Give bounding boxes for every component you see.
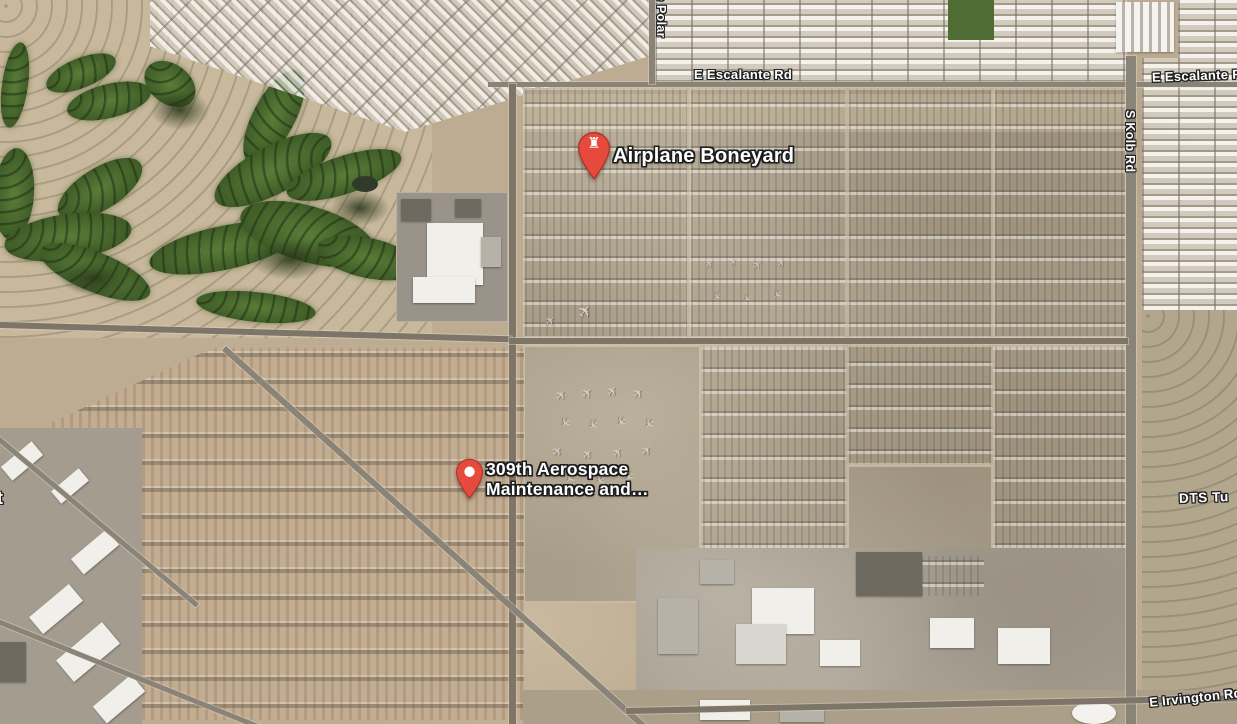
road-label-escalante-right: E Escalante Rd [1152,66,1237,84]
pond [352,176,378,192]
marker-airplane-boneyard[interactable]: ♜ [578,132,610,180]
attraction-rook-icon: ♜ [578,135,610,153]
road-center-vertical [509,84,516,724]
residential-right-corner [1178,0,1237,58]
marker-label-airplane-boneyard[interactable]: Airplane Boneyard [613,145,794,168]
industrial-left [0,428,142,724]
boneyard-upper [523,88,1127,338]
marker-309th-aerospace[interactable] [456,458,483,500]
road-label-s-kolb: S Kolb Rd [1123,110,1137,172]
marker-label-line1: 309th Aerospace [486,459,649,479]
facility-compound [396,192,508,322]
residential-east-of-kolb [1142,58,1237,310]
pin-shape [456,458,483,500]
park-green [948,0,994,40]
circular-tank [1072,702,1116,724]
road-label-escalante-center: E Escalante Rd [694,67,792,82]
road-e-escalante [488,82,1237,87]
marker-label-line2: Maintenance and… [486,479,649,499]
label-left-edge-partial: t [0,488,3,509]
road-mid-east [509,338,1128,344]
place-label-dts: DTS Tu [1179,489,1229,506]
school-building [1116,2,1174,52]
satellite-map[interactable]: E Escalante Rd E Escalante Rd S Kolb Rd … [0,0,1237,724]
road-label-polar: e Polar [654,0,668,38]
industrial-area [636,548,1128,704]
marker-label-309th-aerospace[interactable]: 309th Aerospace Maintenance and… [486,459,649,499]
desert-east-of-kolb [1142,310,1237,724]
